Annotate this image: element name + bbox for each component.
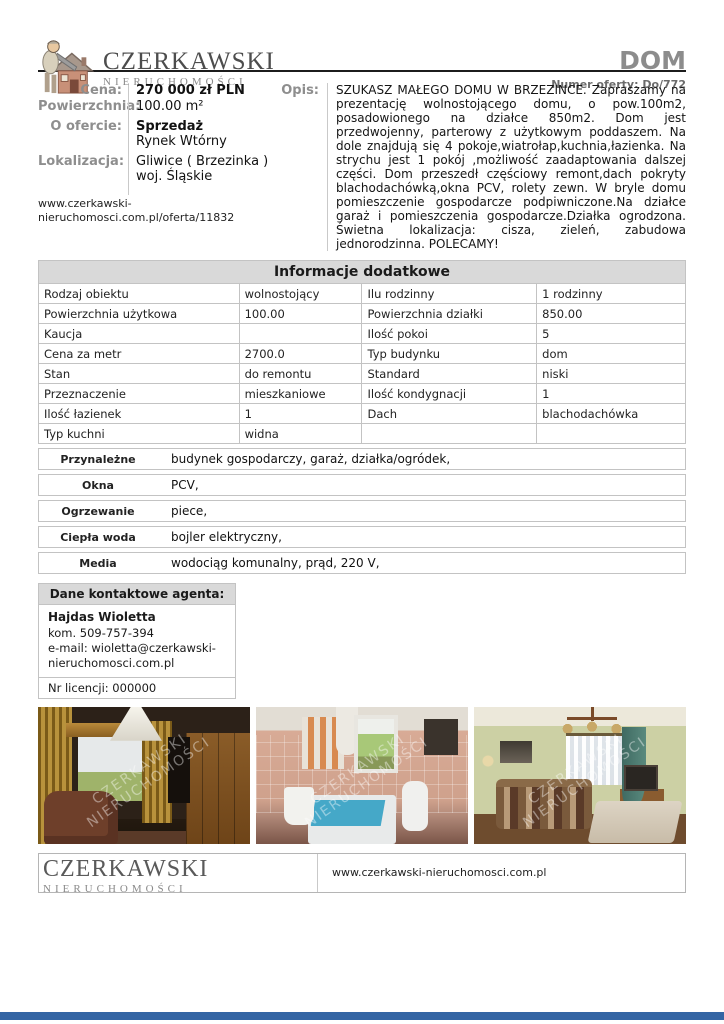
toilet-shape	[402, 781, 428, 831]
feature-row-okna: Okna PCV,	[38, 474, 686, 496]
table-shape	[588, 801, 683, 843]
cell-value	[537, 424, 686, 444]
table-row: Rodzaj obiektuwolnostojący Ilu rodzinny1…	[39, 284, 686, 304]
offer-url: www.czerkawski-nieruchomosci.com.pl/ofer…	[38, 197, 256, 226]
agent-license: Nr licencji: 000000	[38, 678, 236, 699]
cell-value: do remontu	[239, 364, 362, 384]
cell-label: Ilość łazienek	[39, 404, 240, 424]
description-label: Opis:	[277, 83, 319, 251]
photo-gallery: CZERKAWSKI NIERUCHOMOŚCI CZERKAWSKI NIER…	[38, 707, 686, 844]
market-type-value: Rynek Wtórny	[136, 134, 227, 149]
cell-label: Powierzchnia użytkowa	[39, 304, 240, 324]
window-shape	[354, 715, 398, 773]
area-label: Powierzchnia:	[38, 99, 122, 114]
feature-label: Przynależne	[39, 453, 157, 466]
table-row: Powierzchnia użytkowa100.00 Powierzchnia…	[39, 304, 686, 324]
offer-type-label: O ofercie:	[38, 119, 122, 149]
summary-divider-line	[128, 85, 129, 195]
cell-label: Standard	[362, 364, 537, 384]
brand-name: CZERKAWSKI	[103, 49, 275, 74]
cell-value: 1 rodzinny	[537, 284, 686, 304]
cell-label: Kaucja	[39, 324, 240, 344]
cell-label: Ilość pokoi	[362, 324, 537, 344]
bottom-accent-bar	[0, 1012, 724, 1020]
agent-contact-box: Dane kontaktowe agenta: Hajdas Wioletta …	[38, 583, 236, 698]
cell-label: Ilość kondygnacji	[362, 384, 537, 404]
summary-row-area: Powierzchnia: 100.00 m²	[38, 99, 275, 114]
property-photo-lounge: CZERKAWSKI NIERUCHOMOŚCI	[474, 707, 686, 844]
cell-label: Przeznaczenie	[39, 384, 240, 404]
table-row: Cena za metr2700.0 Typ budynkudom	[39, 344, 686, 364]
cell-label: Typ budynku	[362, 344, 537, 364]
cell-value: widna	[239, 424, 362, 444]
cell-value	[239, 324, 362, 344]
agent-phone: kom. 509-757-394	[48, 626, 226, 641]
tub-cover-shape	[311, 800, 386, 826]
tv-shape	[624, 765, 658, 791]
feature-value: budynek gospodarczy, garaż, działka/ogró…	[157, 452, 450, 466]
table-row: Przeznaczeniemieszkaniowe Ilość kondygna…	[39, 384, 686, 404]
price-value: 270 000 zł PLN	[136, 83, 245, 98]
cell-value: 1	[239, 404, 362, 424]
cell-label: Powierzchnia działki	[362, 304, 537, 324]
property-photo-bathroom: CZERKAWSKI NIERUCHOMOŚCI	[256, 707, 468, 844]
table-row: Ilość łazienek1 Dachblachodachówka	[39, 404, 686, 424]
cell-value: 100.00	[239, 304, 362, 324]
window-shape	[566, 733, 624, 785]
table-row: Stando remontu Standardniski	[39, 364, 686, 384]
agent-name: Hajdas Wioletta	[48, 610, 226, 626]
summary-row-offer-type: O ofercie: Sprzedaż Rynek Wtórny	[38, 119, 275, 149]
cell-label	[362, 424, 537, 444]
location-label: Lokalizacja:	[38, 154, 122, 184]
document-type-title: DOM	[551, 48, 686, 73]
feature-row-ogrzewanie: Ogrzewanie piece,	[38, 500, 686, 522]
cell-value: niski	[537, 364, 686, 384]
document-header: CZERKAWSKI NIERUCHOMOŚCI DOM Numer ofert…	[38, 0, 686, 70]
description-section: Opis: SZUKASZ MAŁEGO DOMU W BRZEZINCE. Z…	[277, 83, 686, 251]
table-row: Typ kuchniwidna	[39, 424, 686, 444]
feature-label: Ogrzewanie	[39, 505, 157, 518]
price-label: Cena:	[38, 83, 122, 98]
agent-box-title: Dane kontaktowe agenta:	[38, 583, 236, 605]
feature-value: piece,	[157, 504, 207, 518]
feature-row-ciepla-woda: Ciepła woda bojler elektryczny,	[38, 526, 686, 548]
cell-label: Stan	[39, 364, 240, 384]
additional-info-table: Informacje dodatkowe Rodzaj obiektuwolno…	[38, 260, 686, 444]
cell-label: Cena za metr	[39, 344, 240, 364]
feature-label: Okna	[39, 479, 157, 492]
table-row: Kaucja Ilość pokoi5	[39, 324, 686, 344]
cell-value: 850.00	[537, 304, 686, 324]
location-region: woj. Śląskie	[136, 169, 268, 184]
footer-website: www.czerkawski-nieruchomosci.com.pl	[317, 854, 685, 892]
feature-label: Media	[39, 557, 157, 570]
feature-row-media: Media wodociąg komunalny, prąd, 220 V,	[38, 552, 686, 574]
agent-email: e-mail: wioletta@czerkawski-nieruchomosc…	[48, 641, 226, 671]
cell-value: 2700.0	[239, 344, 362, 364]
cell-value: wolnostojący	[239, 284, 362, 304]
document-footer: CZERKAWSKI NIERUCHOMOŚCI www.czerkawski-…	[38, 853, 686, 893]
table-title: Informacje dodatkowe	[39, 261, 686, 284]
listing-document: CZERKAWSKI NIERUCHOMOŚCI DOM Numer ofert…	[0, 0, 724, 1024]
sofa-shape	[496, 779, 592, 829]
cell-value: 5	[537, 324, 686, 344]
offer-type-value: Sprzedaż	[136, 119, 227, 134]
lamp-shape	[110, 707, 162, 741]
cell-label: Rodzaj obiektu	[39, 284, 240, 304]
armchair-shape	[44, 791, 118, 844]
cell-label: Dach	[362, 404, 537, 424]
footer-brand-subtitle: NIERUCHOMOŚCI	[43, 883, 317, 895]
cell-label: Ilu rodzinny	[362, 284, 537, 304]
feature-value: bojler elektryczny,	[157, 530, 282, 544]
feature-value: wodociąg komunalny, prąd, 220 V,	[157, 556, 380, 570]
feature-value: PCV,	[157, 478, 199, 492]
location-city: Gliwice ( Brzezinka )	[136, 154, 268, 169]
cell-value: dom	[537, 344, 686, 364]
summary-row-location: Lokalizacja: Gliwice ( Brzezinka ) woj. …	[38, 154, 275, 184]
offer-summary: Cena: 270 000 zł PLN Powierzchnia: 100.0…	[38, 83, 275, 251]
area-value: 100.00 m²	[136, 99, 204, 114]
summary-row-price: Cena: 270 000 zł PLN	[38, 83, 275, 98]
cell-value: blachodachówka	[537, 404, 686, 424]
footer-brand-name: CZERKAWSKI	[43, 857, 317, 881]
chandelier-shape	[560, 707, 624, 735]
feature-label: Ciepła woda	[39, 531, 157, 544]
bucket-shape	[284, 787, 314, 825]
cell-value: mieszkaniowe	[239, 384, 362, 404]
description-text: SZUKASZ MAŁEGO DOMU W BRZEZINCE. Zaprasz…	[327, 83, 686, 251]
cell-label: Typ kuchni	[39, 424, 240, 444]
property-photo-living-room: CZERKAWSKI NIERUCHOMOŚCI	[38, 707, 250, 844]
cell-value: 1	[537, 384, 686, 404]
feature-row-przynalezne: Przynależne budynek gospodarczy, garaż, …	[38, 448, 686, 470]
